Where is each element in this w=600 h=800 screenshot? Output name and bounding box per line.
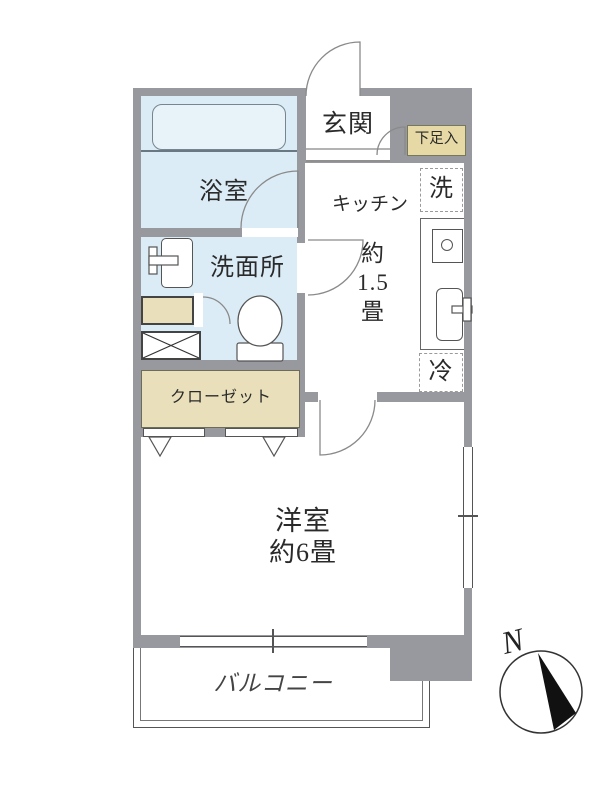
door-arc-bathroom bbox=[241, 171, 298, 228]
sink-faucet-icon-v bbox=[463, 298, 471, 321]
compass-north-label: N bbox=[497, 620, 529, 661]
door-arc-shoe-cabinet bbox=[377, 127, 405, 155]
vanity-faucet-icon-h bbox=[149, 256, 178, 265]
door-arc-entrance bbox=[306, 42, 360, 96]
door-arc-kitchen-room bbox=[320, 400, 375, 455]
compass-needle-icon bbox=[538, 653, 576, 730]
pipe-space-cross-icon bbox=[143, 333, 199, 358]
door-arc-washroom-kitchen bbox=[308, 240, 363, 295]
closet-hanger-icon-left bbox=[149, 437, 171, 456]
floor-plan: 浴室 洗面所 クローゼット 玄関 下足入 キッチン 約 1.5 畳 洗 冷 洋室… bbox=[0, 0, 600, 800]
toilet-bowl-icon bbox=[238, 296, 282, 346]
closet-hanger-icon-right bbox=[263, 437, 285, 456]
compass: N bbox=[492, 616, 596, 742]
door-arc-storage bbox=[203, 297, 230, 324]
